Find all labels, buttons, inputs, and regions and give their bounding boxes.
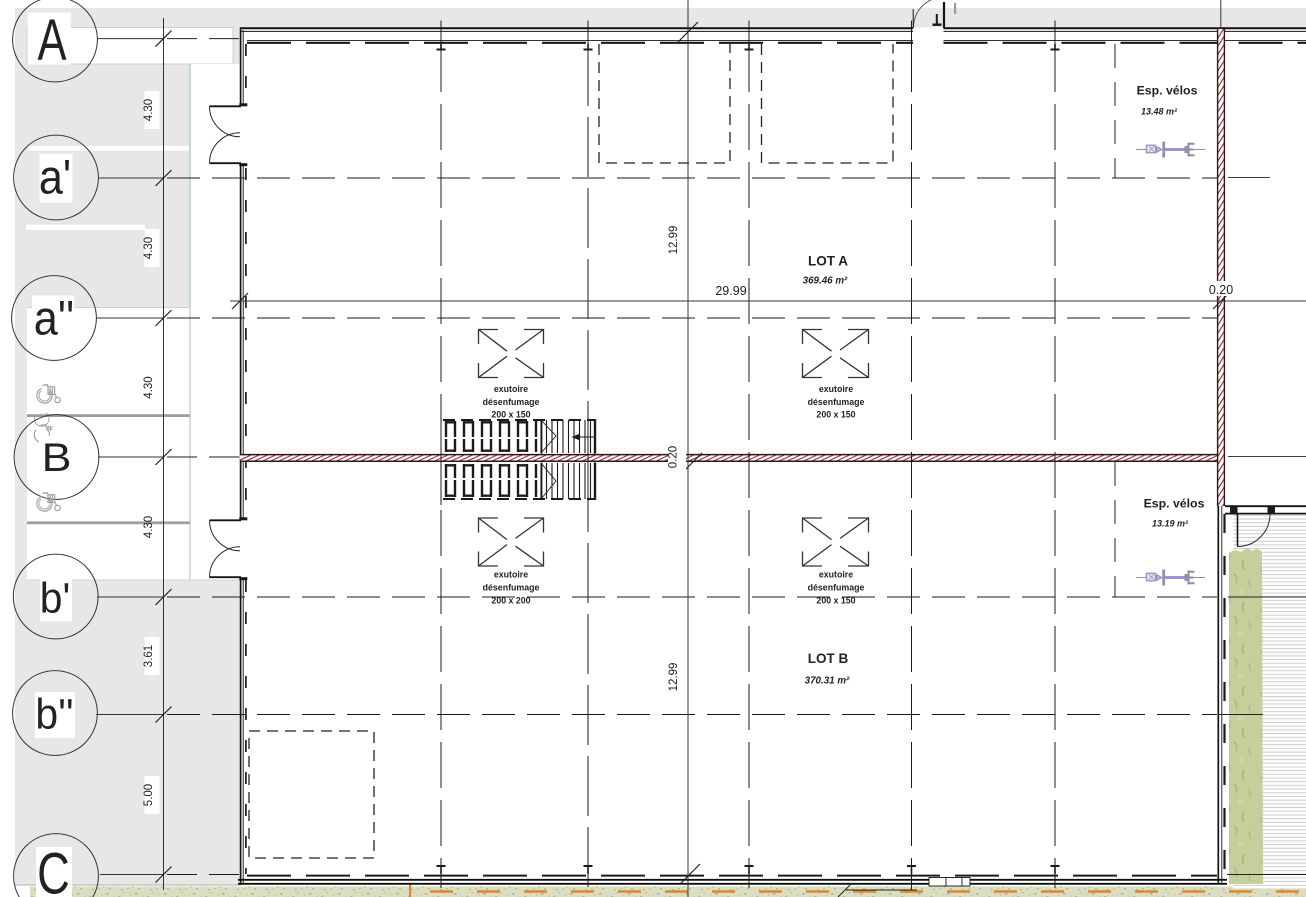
svg-text:12.99: 12.99	[668, 226, 680, 255]
svg-text:a'': a''	[34, 291, 75, 345]
svg-text:370.31 m²: 370.31 m²	[805, 676, 850, 687]
svg-text:0.20: 0.20	[668, 446, 680, 468]
svg-text:4.30: 4.30	[143, 99, 155, 121]
svg-text:désenfumage: désenfumage	[808, 397, 865, 407]
svg-text:13.48 m²: 13.48 m²	[1141, 107, 1178, 117]
svg-text:200 x 150: 200 x 150	[816, 410, 855, 420]
svg-text:b': b'	[40, 573, 71, 621]
svg-text:désenfumage: désenfumage	[483, 583, 540, 593]
svg-text:369.46 m²: 369.46 m²	[803, 276, 848, 287]
svg-text:A: A	[37, 8, 67, 72]
svg-text:4.30: 4.30	[143, 237, 155, 259]
svg-text:200 x 150: 200 x 150	[816, 596, 855, 606]
svg-text:5.00: 5.00	[143, 784, 155, 806]
svg-text:exutoire: exutoire	[494, 384, 528, 394]
svg-text:exutoire: exutoire	[494, 570, 528, 580]
svg-text:C: C	[37, 842, 70, 897]
svg-text:4.30: 4.30	[143, 516, 155, 538]
svg-text:LOT A: LOT A	[808, 254, 848, 269]
svg-text:0.20: 0.20	[1209, 283, 1233, 297]
svg-text:exutoire: exutoire	[819, 570, 853, 580]
svg-text:200 x 200: 200 x 200	[491, 596, 530, 606]
svg-text:exutoire: exutoire	[819, 384, 853, 394]
svg-text:désenfumage: désenfumage	[808, 583, 865, 593]
svg-text:B: B	[42, 435, 72, 479]
svg-text:b'': b''	[35, 690, 73, 738]
svg-text:13.19 m²: 13.19 m²	[1152, 519, 1189, 529]
svg-text:Esp. vélos: Esp. vélos	[1144, 497, 1205, 511]
svg-text:3.61: 3.61	[143, 645, 155, 667]
svg-text:désenfumage: désenfumage	[483, 397, 540, 407]
svg-text:LOT B: LOT B	[808, 651, 849, 666]
svg-text:a': a'	[39, 150, 71, 204]
svg-text:Esp. vélos: Esp. vélos	[1137, 84, 1198, 98]
svg-text:29.99: 29.99	[715, 284, 746, 298]
svg-text:12.99: 12.99	[668, 663, 680, 692]
svg-text:4.30: 4.30	[143, 376, 155, 398]
svg-text:200 x 150: 200 x 150	[491, 410, 530, 420]
